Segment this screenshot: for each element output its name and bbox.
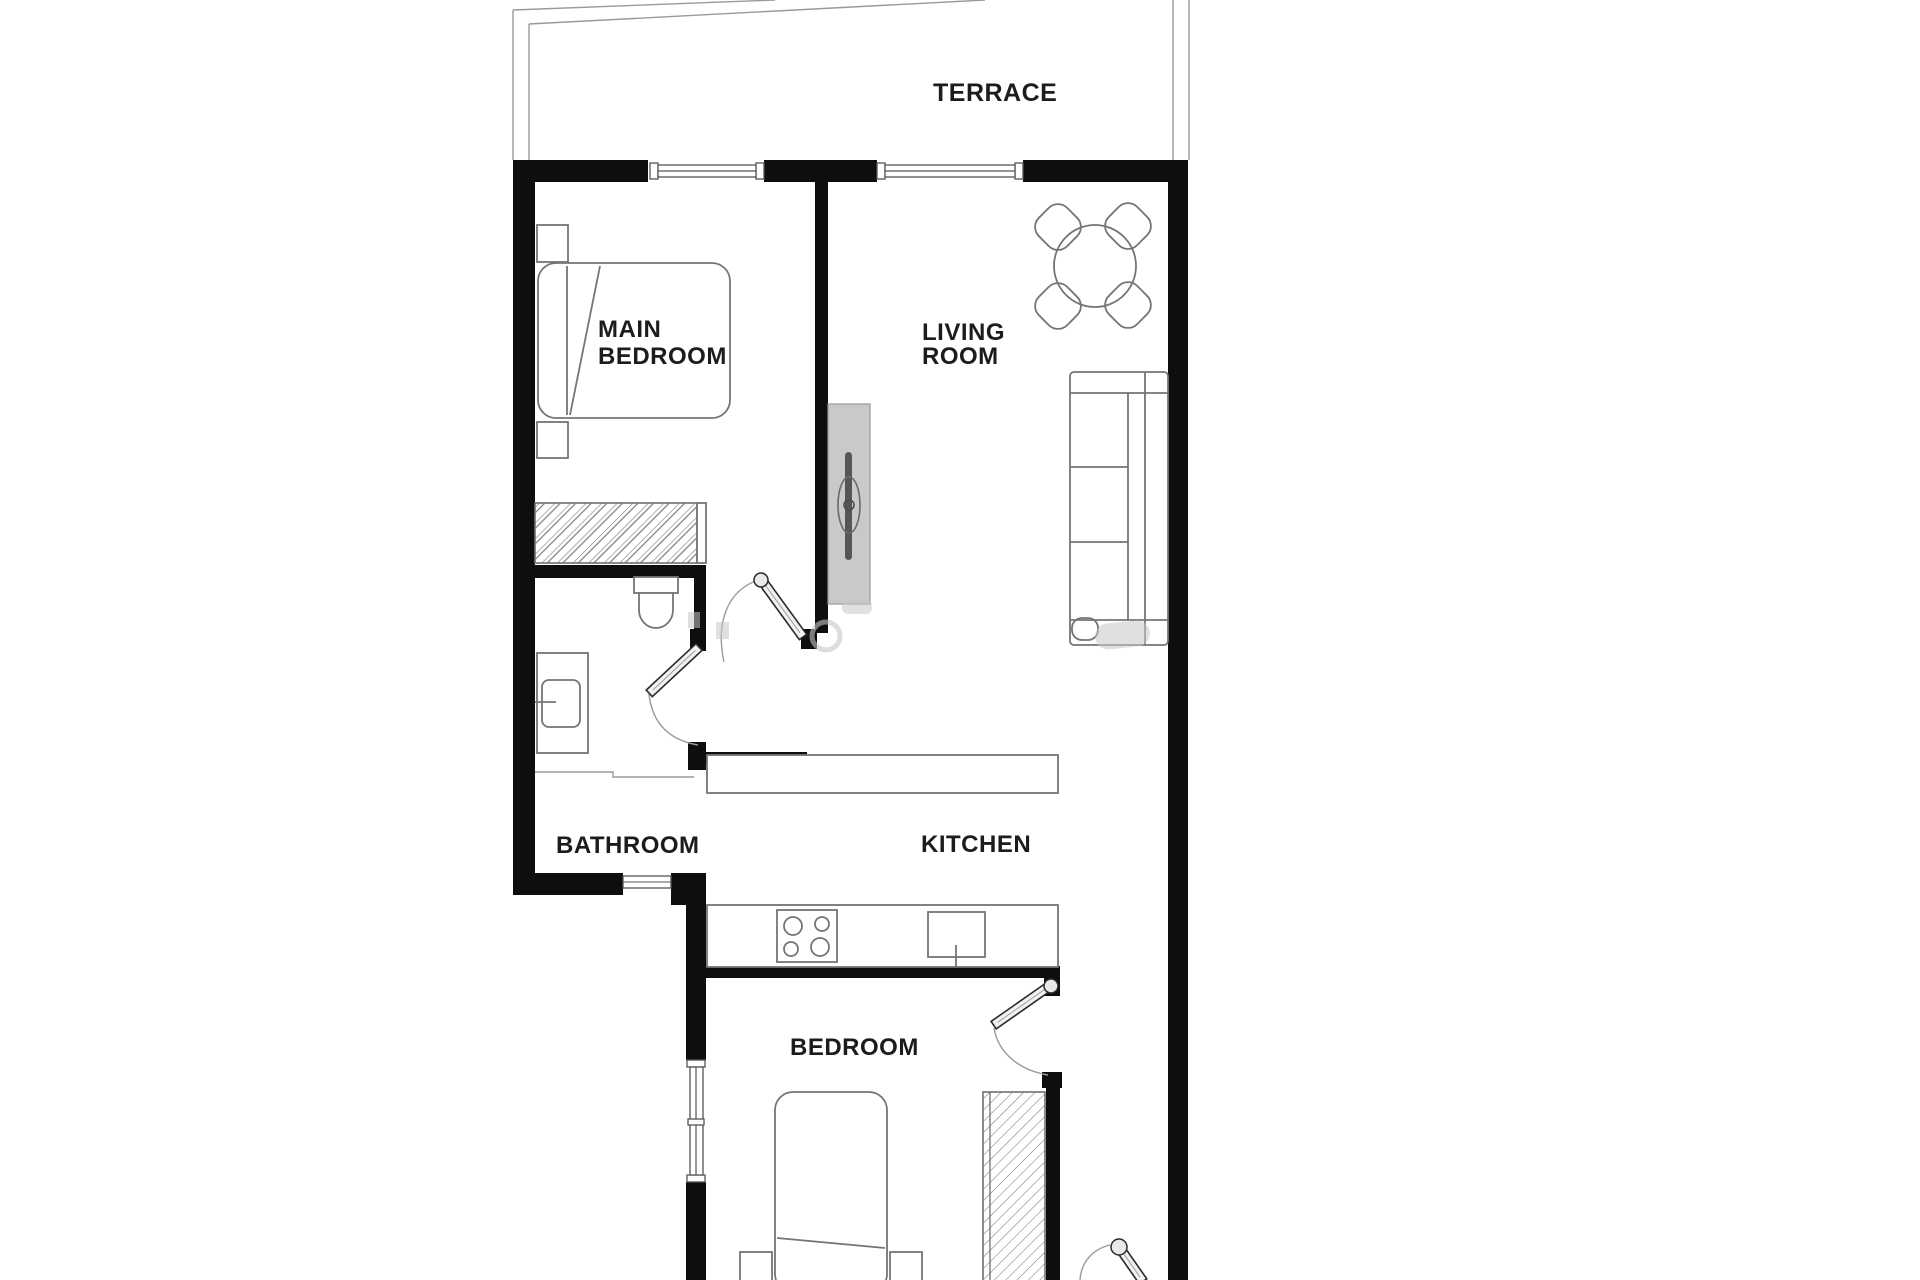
main-bedroom-furniture: [535, 225, 730, 563]
door-hinge: [1111, 1239, 1127, 1255]
top-wall-right-segment: [1023, 160, 1188, 182]
kitchen-upper-counter: [707, 755, 1058, 793]
bedroom-door: [991, 979, 1058, 1075]
floor-plan-page: TERRACE MAIN BEDROOM LIVING ROOM BATHROO…: [0, 0, 1920, 1280]
dining-table: [1054, 225, 1136, 307]
shower-floor-line: [535, 772, 694, 777]
living-room-label-line1: LIVING: [922, 319, 1005, 346]
terrace-outline: [513, 0, 1189, 160]
wardrobe: [983, 1092, 1045, 1280]
stove: [777, 910, 837, 962]
window-bedroom: [687, 1060, 705, 1182]
bedroom-furniture: [740, 1092, 1045, 1280]
bathroom-corner-block: [671, 873, 706, 905]
left-wall: [513, 160, 535, 895]
nightstand: [537, 422, 568, 458]
main-bedroom-label-line1: MAIN: [598, 316, 661, 343]
kitchen-furniture: [707, 755, 1058, 967]
top-wall-middle-segment: [764, 160, 877, 182]
tv-screen: [845, 452, 852, 560]
kitchen-lower-counter: [707, 905, 1058, 967]
single-bed: [775, 1092, 887, 1280]
lower-left-wall-lower: [686, 1182, 706, 1280]
bathroom-label: BATHROOM: [556, 832, 700, 859]
nightstand: [740, 1252, 772, 1280]
floor-plan-drawing: TERRACE MAIN BEDROOM LIVING ROOM BATHROO…: [0, 0, 1920, 1280]
built-in-closet: [535, 503, 706, 563]
lower-left-wall-upper: [686, 905, 706, 1060]
bathroom-sink: [535, 653, 588, 753]
terrace-access-door: [1080, 1239, 1147, 1280]
terrace-top-outer-line: [513, 0, 775, 10]
bathroom-bottom-wall: [513, 873, 623, 895]
nightstand: [890, 1252, 922, 1280]
toilet: [634, 577, 678, 628]
terrace-label: TERRACE: [933, 79, 1057, 107]
sofa: [1070, 372, 1168, 645]
bathroom-door: [646, 644, 702, 745]
main-bedroom-door: [721, 573, 806, 662]
living-room-furniture: [828, 198, 1168, 645]
bedroom-label: BEDROOM: [790, 1034, 919, 1061]
bathroom-threshold: [623, 876, 671, 888]
main-bedroom-label-line2: BEDROOM: [598, 343, 727, 370]
window-main-bedroom: [650, 163, 764, 179]
living-room-label-line2: ROOM: [922, 343, 999, 370]
door-hinge: [754, 573, 768, 587]
bedroom-right-wall: [1046, 1078, 1060, 1280]
window-living-room: [877, 163, 1023, 179]
kitchen-label: KITCHEN: [921, 831, 1031, 858]
door-hinge: [1044, 979, 1058, 993]
bathroom-top-wall: [513, 565, 706, 578]
tv-media-unit: [828, 404, 870, 604]
nightstand: [537, 225, 568, 262]
main-bedroom-partition-wall: [815, 182, 828, 633]
terrace-top-inner-line: [529, 0, 985, 24]
right-wall: [1168, 160, 1188, 1280]
